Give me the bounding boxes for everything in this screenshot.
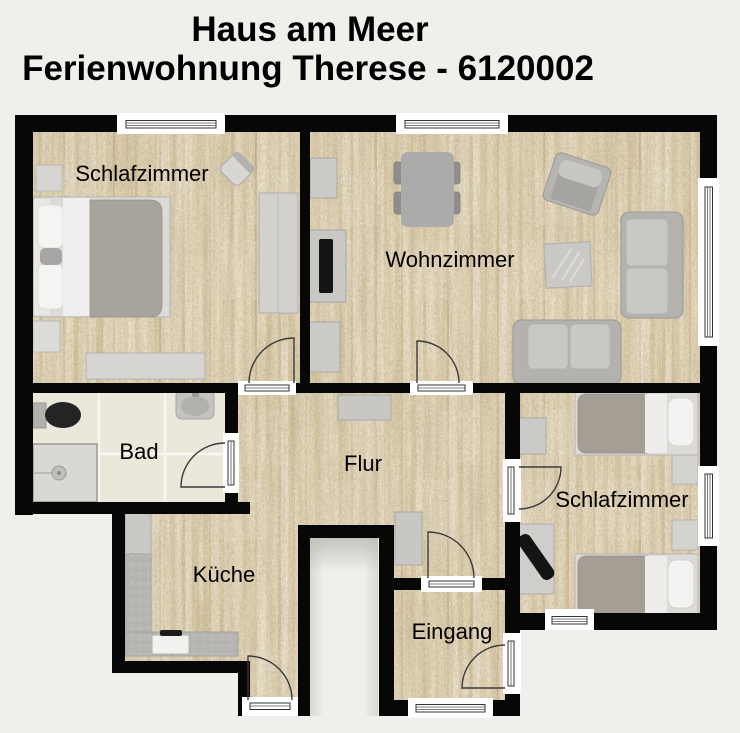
svg-text:Wohnzimmer: Wohnzimmer <box>385 247 514 272</box>
svg-text:Schlafzimmer: Schlafzimmer <box>75 161 208 186</box>
svg-text:Bad: Bad <box>119 439 158 464</box>
svg-text:Küche: Küche <box>193 562 255 587</box>
svg-text:Flur: Flur <box>344 451 382 476</box>
svg-text:Ferienwohnung Therese - 612000: Ferienwohnung Therese - 6120002 <box>22 49 594 88</box>
svg-text:Schlafzimmer: Schlafzimmer <box>555 487 688 512</box>
svg-text:Haus am Meer: Haus am Meer <box>191 10 429 49</box>
svg-text:Eingang: Eingang <box>412 619 493 644</box>
